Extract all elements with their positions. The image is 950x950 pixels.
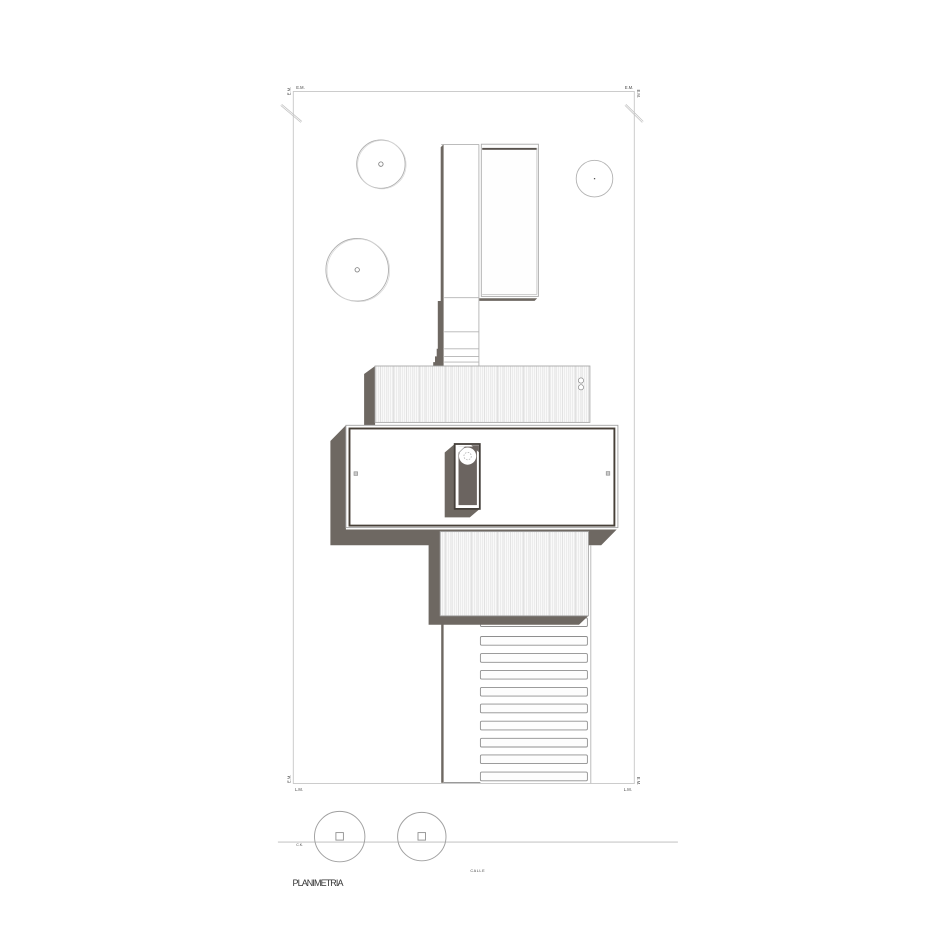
svg-text:CALLE: CALLE (470, 869, 485, 873)
svg-text:E.M.: E.M. (636, 777, 641, 785)
svg-text:E.M.: E.M. (287, 775, 292, 783)
svg-text:E.M.: E.M. (636, 90, 641, 98)
svg-text:PLANIMETRIA: PLANIMETRIA (293, 878, 344, 888)
svg-text:E.M.: E.M. (625, 85, 633, 90)
svg-text:E.M.: E.M. (296, 85, 304, 90)
svg-text:L.M.: L.M. (624, 787, 632, 792)
svg-text:L.M.: L.M. (295, 787, 303, 792)
svg-text:E.M.: E.M. (287, 87, 292, 95)
svg-text:C.K.: C.K. (296, 843, 303, 847)
